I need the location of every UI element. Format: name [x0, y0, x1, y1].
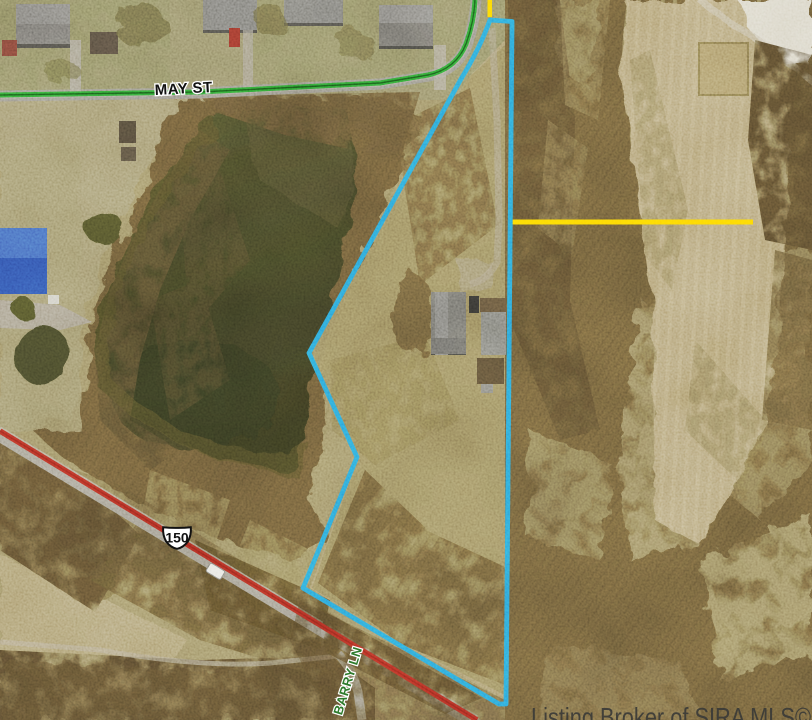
svg-text:Listing Broker of SIRA MLS©: Listing Broker of SIRA MLS©: [531, 702, 811, 720]
svg-text:150: 150: [165, 530, 189, 546]
svg-text:MAY ST: MAY ST: [154, 79, 213, 99]
